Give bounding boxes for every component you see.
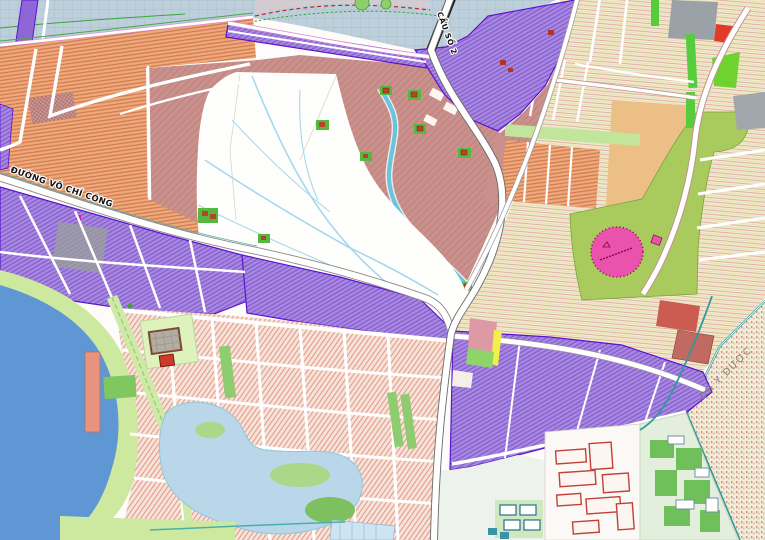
stadium-blob xyxy=(591,227,643,277)
map-canvas[interactable]: ĐƯỜNG VÕ CHÍ CÔNG CẦU SỐ 2 ĐH Y DƯỢC xyxy=(0,0,765,540)
map-viewport: ĐƯỜNG VÕ CHÍ CÔNG CẦU SỐ 2 ĐH Y DƯỢC xyxy=(0,0,765,540)
school-block xyxy=(140,314,198,369)
